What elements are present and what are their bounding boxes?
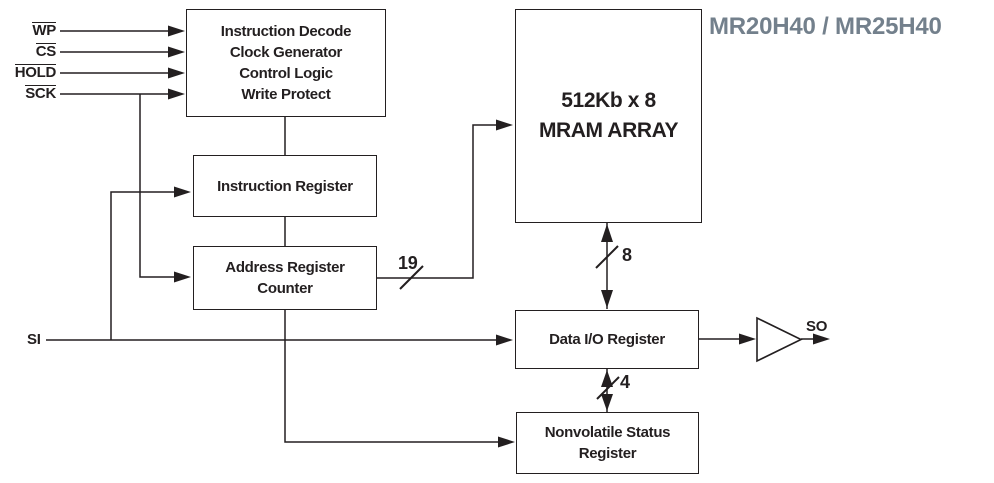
block-line: Control Logic [239, 63, 333, 84]
cs-overline-text: CS [36, 43, 56, 59]
block-line: Address Register [225, 257, 344, 278]
si-branch-wire [111, 192, 175, 340]
hold-signal-label: HOLD [6, 64, 56, 80]
so-arrowhead [813, 334, 830, 345]
sck-signal-label: SCK [6, 85, 56, 101]
block-line: Data I/O Register [549, 329, 665, 350]
block-line: Instruction Decode [221, 21, 351, 42]
block-line: Clock Generator [230, 42, 342, 63]
control-logic-block: Instruction Decode Clock Generator Contr… [186, 9, 386, 117]
hold-overline-text: HOLD [15, 64, 56, 80]
mram-block-diagram: Instruction Decode Clock Generator Contr… [0, 0, 994, 483]
block-line: MRAM ARRAY [539, 116, 678, 146]
addr-to-mram-wire [377, 125, 497, 278]
address-bus-width-label: 19 [398, 254, 417, 272]
sck-overline-text: SCK [25, 85, 56, 101]
block-line: Counter [257, 278, 312, 299]
bus8-up-arrowhead [601, 224, 613, 242]
block-line: Write Protect [241, 84, 330, 105]
block-line: Instruction Register [217, 176, 353, 197]
si-arrowhead [496, 335, 513, 346]
cs-signal-label: CS [6, 43, 56, 59]
data-io-register-block: Data I/O Register [515, 310, 699, 369]
instruction-register-block: Instruction Register [193, 155, 377, 217]
bus4-down-arrowhead [601, 394, 613, 411]
mram-array-block: 512Kb x 8 MRAM ARRAY [515, 9, 702, 223]
addr-to-status-wire [285, 310, 499, 442]
wp-arrowhead [168, 26, 185, 37]
mram-bus-width-label: 8 [622, 246, 632, 264]
hold-arrowhead [168, 68, 185, 79]
mram-input-arrowhead [496, 120, 513, 131]
block-line: 512Kb x 8 [561, 86, 655, 116]
buffer-input-arrowhead [739, 334, 756, 345]
instr-input-arrowhead [174, 187, 191, 198]
output-buffer-triangle [757, 318, 801, 361]
connector-wires-layer [0, 0, 994, 483]
address-register-counter-block: Address Register Counter [193, 246, 377, 310]
sck-branch-wire [140, 94, 175, 277]
block-line: Register [579, 443, 637, 464]
cs-arrowhead [168, 47, 185, 58]
si-signal-label: SI [27, 332, 41, 347]
wp-signal-label: WP [6, 22, 56, 38]
wp-overline-text: WP [32, 22, 56, 38]
bus4-up-arrowhead [601, 370, 613, 387]
nonvolatile-status-register-block: Nonvolatile Status Register [516, 412, 699, 474]
bus8-down-arrowhead [601, 290, 613, 308]
block-line: Nonvolatile Status [545, 422, 670, 443]
status-input-arrowhead [498, 437, 515, 448]
so-signal-label: SO [806, 319, 827, 334]
addr-input-arrowhead [174, 272, 191, 283]
part-number-title: MR20H40 / MR25H40 [709, 13, 942, 41]
status-bus-width-label: 4 [620, 373, 630, 391]
sck-arrowhead [168, 89, 185, 100]
